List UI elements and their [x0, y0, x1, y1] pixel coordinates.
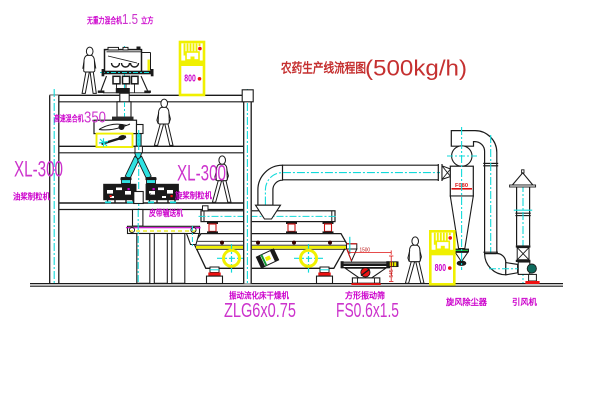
svg-text:ZLG6x0.75: ZLG6x0.75 — [224, 300, 296, 322]
svg-text:FS0.6x1.5: FS0.6x1.5 — [336, 300, 399, 322]
svg-text:立方: 立方 — [141, 16, 154, 26]
svg-text:545: 545 — [389, 269, 395, 277]
svg-text:方形振动筛: 方形振动筛 — [345, 290, 385, 301]
svg-text:1500: 1500 — [360, 248, 371, 254]
svg-text:引风机: 引风机 — [512, 296, 537, 307]
svg-text:XL-300: XL-300 — [14, 157, 63, 182]
svg-text:振动流化床干燥机: 振动流化床干燥机 — [229, 290, 289, 301]
svg-text:无重力混合机: 无重力混合机 — [86, 16, 122, 26]
svg-text:油桨制粒机: 油桨制粒机 — [13, 192, 50, 202]
svg-text:XL-300: XL-300 — [177, 161, 226, 186]
svg-text:旋桨制粒机: 旋桨制粒机 — [174, 191, 212, 201]
svg-text:皮带输送机: 皮带输送机 — [148, 208, 183, 218]
svg-text:1.5: 1.5 — [122, 12, 138, 28]
svg-text:(500kg/h): (500kg/h) — [365, 56, 467, 81]
svg-text:农药生产线流程图: 农药生产线流程图 — [280, 61, 366, 76]
svg-text:高速混合机: 高速混合机 — [54, 114, 84, 124]
svg-text:350: 350 — [84, 110, 106, 127]
svg-text:旋风除尘器: 旋风除尘器 — [445, 296, 487, 307]
